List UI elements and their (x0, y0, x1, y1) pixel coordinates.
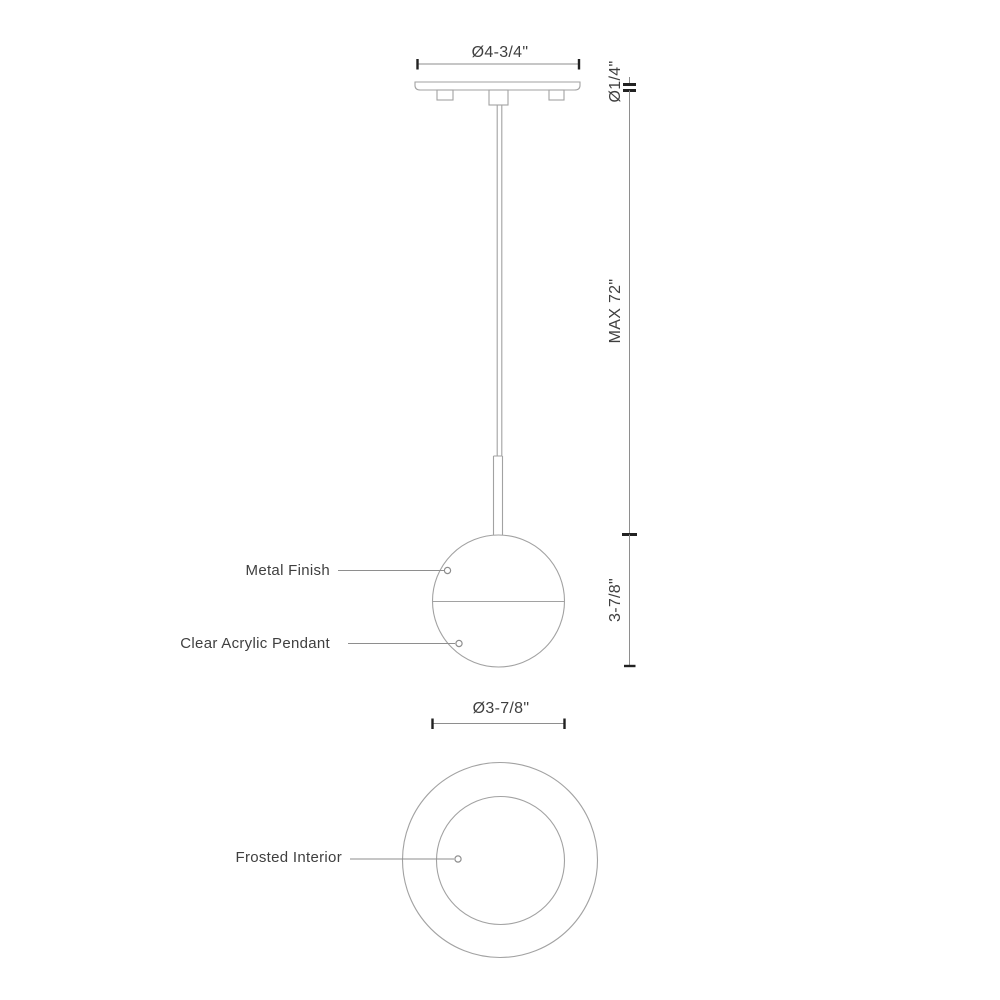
metal-finish-marker (444, 567, 450, 573)
technical-drawing: Ø4-3/4" (0, 0, 1000, 1000)
callout-metal-finish: Metal Finish (246, 562, 451, 579)
frosted-interior-marker (455, 856, 461, 862)
bottom-diameter-dimension: Ø3-7/8" (433, 700, 565, 729)
canopy (415, 82, 580, 105)
callout-frosted-interior: Frosted Interior (235, 849, 461, 866)
spec-sheet-canvas: Ø4-3/4" (0, 0, 1000, 1000)
frosted-interior-label: Frosted Interior (235, 849, 342, 866)
stem-outline (494, 456, 503, 536)
side-view: Ø4-3/4" (180, 44, 637, 667)
bottom-view: Ø3-7/8" Frosted Interior (235, 700, 597, 958)
bottom-outer-circle (403, 763, 598, 958)
callout-clear-acrylic: Clear Acrylic Pendant (180, 635, 462, 652)
bottom-diameter-label: Ø3-7/8" (473, 700, 530, 717)
canopy-tab-right (549, 90, 564, 100)
canopy-tab-left (437, 90, 453, 100)
clear-acrylic-label: Clear Acrylic Pendant (180, 635, 330, 652)
right-dimension-chain: Ø1/4" MAX 72" 3-7/8" (607, 61, 637, 666)
canopy-socket-center (489, 90, 508, 105)
canopy-diameter-label: Ø4-3/4" (472, 44, 529, 61)
pendant-sphere (433, 535, 565, 667)
metal-finish-label: Metal Finish (246, 562, 330, 579)
max-drop-label: MAX 72" (607, 279, 624, 344)
clear-acrylic-marker (456, 640, 462, 646)
pendant-height-label: 3-7/8" (607, 578, 624, 622)
canopy-plate (415, 82, 580, 90)
stem (494, 456, 503, 536)
canopy-diameter-dimension: Ø4-3/4" (418, 44, 580, 70)
cord-diameter-label: Ø1/4" (607, 61, 624, 103)
suspension-cord (497, 105, 502, 456)
